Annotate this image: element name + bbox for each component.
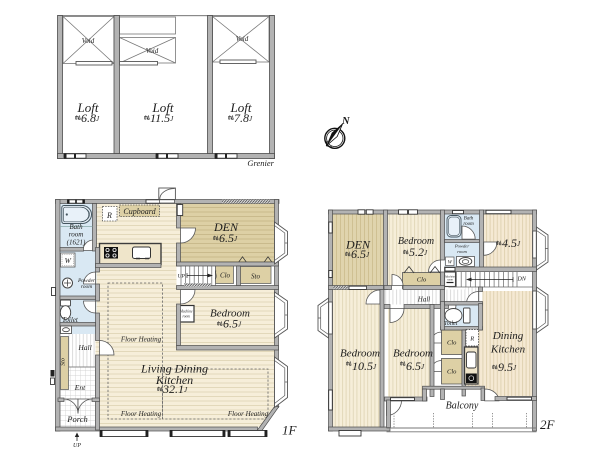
svg-text:Clo: Clo bbox=[447, 340, 457, 347]
svg-text:Floor Heating: Floor Heating bbox=[227, 410, 269, 418]
svg-text:Bedroom: Bedroom bbox=[340, 348, 380, 360]
svg-text:Machine: Machine bbox=[179, 310, 193, 314]
svg-text:Bath: Bath bbox=[464, 217, 474, 222]
svg-text:R: R bbox=[106, 211, 112, 220]
svg-text:Hall: Hall bbox=[417, 296, 431, 304]
svg-text:N: N bbox=[341, 116, 350, 127]
svg-text:1F: 1F bbox=[282, 423, 298, 438]
svg-text:UP: UP bbox=[73, 443, 81, 449]
svg-text:Clo: Clo bbox=[447, 369, 457, 376]
svg-text:Void: Void bbox=[146, 47, 159, 55]
svg-text:Grenier: Grenier bbox=[247, 158, 274, 168]
svg-text:Powder: Powder bbox=[454, 244, 470, 249]
svg-text:Void: Void bbox=[236, 35, 249, 43]
svg-text:room: room bbox=[447, 279, 453, 282]
svg-text:room: room bbox=[457, 249, 467, 254]
svg-text:Sto: Sto bbox=[251, 273, 260, 281]
svg-text:Toilet: Toilet bbox=[62, 316, 79, 324]
svg-text:room: room bbox=[81, 284, 92, 290]
svg-text:Sto: Sto bbox=[61, 358, 67, 366]
svg-text:UP: UP bbox=[178, 274, 186, 280]
svg-text:W: W bbox=[65, 256, 72, 265]
svg-text:Dining: Dining bbox=[492, 330, 524, 342]
svg-text:Floor Heating: Floor Heating bbox=[120, 336, 162, 344]
svg-text:Floor Heating: Floor Heating bbox=[120, 410, 162, 418]
svg-text:room: room bbox=[182, 315, 190, 319]
svg-text:R: R bbox=[469, 336, 474, 343]
svg-text:room: room bbox=[463, 222, 474, 227]
svg-text:room: room bbox=[69, 231, 84, 239]
svg-text:Void: Void bbox=[82, 37, 95, 45]
svg-text:Bedroom: Bedroom bbox=[393, 348, 433, 360]
svg-text:Balcony: Balcony bbox=[446, 401, 479, 412]
svg-text:Toilet: Toilet bbox=[444, 321, 458, 327]
svg-text:Clo: Clo bbox=[220, 272, 231, 280]
svg-text:Kitchen: Kitchen bbox=[490, 344, 526, 356]
svg-text:Clo: Clo bbox=[417, 277, 427, 284]
svg-text:Porch: Porch bbox=[66, 414, 87, 424]
svg-text:Cupboard: Cupboard bbox=[123, 207, 156, 216]
svg-text:Hall: Hall bbox=[77, 343, 91, 352]
svg-text:2F: 2F bbox=[540, 417, 556, 432]
svg-text:DN: DN bbox=[517, 277, 527, 283]
svg-text:(1621): (1621) bbox=[67, 239, 86, 247]
svg-text:Ent: Ent bbox=[74, 383, 86, 392]
